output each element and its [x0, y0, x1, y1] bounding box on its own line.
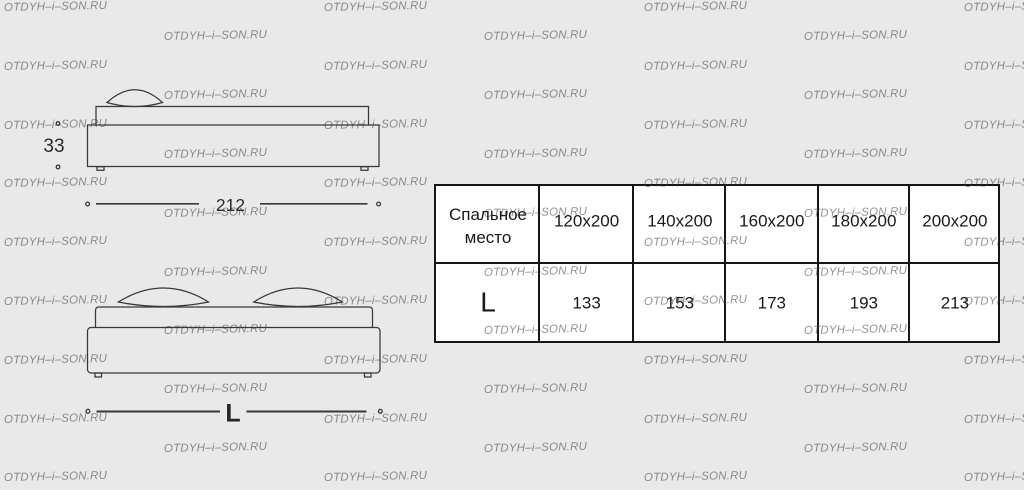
svg-text:L: L [225, 400, 240, 428]
svg-text:33: 33 [43, 136, 64, 157]
